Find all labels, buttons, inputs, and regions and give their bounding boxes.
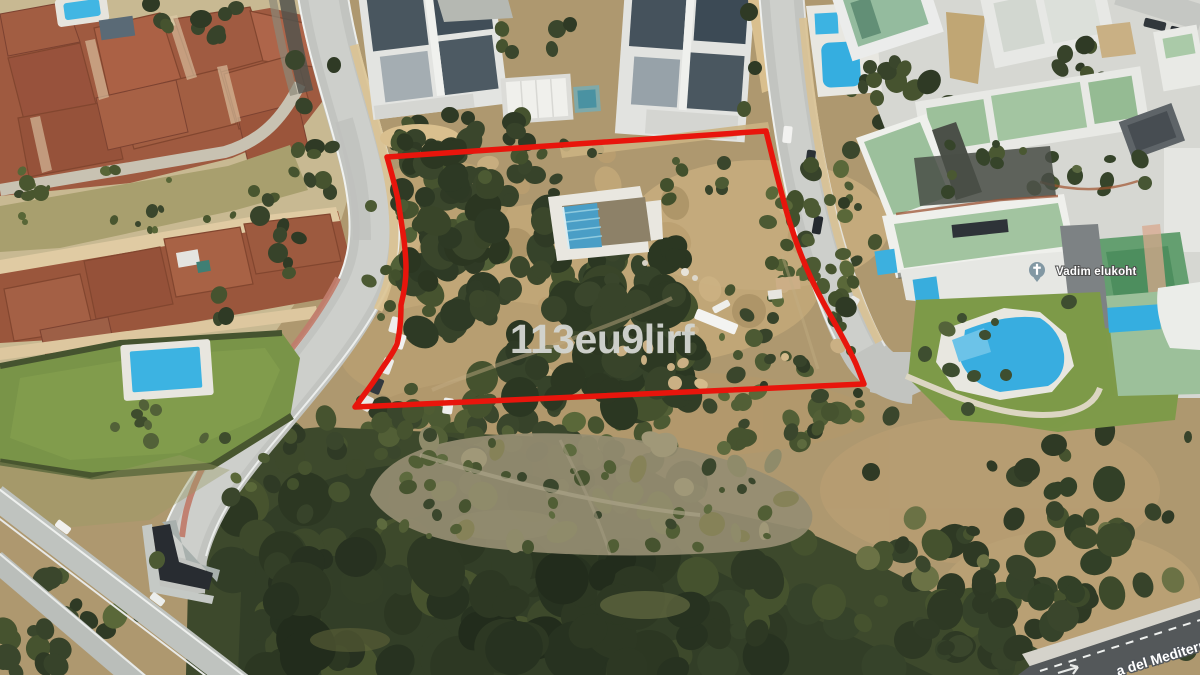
svg-text:Vadim elukoht: Vadim elukoht [1056,266,1137,278]
svg-text:113eu9lirf: 113eu9lirf [510,316,695,362]
